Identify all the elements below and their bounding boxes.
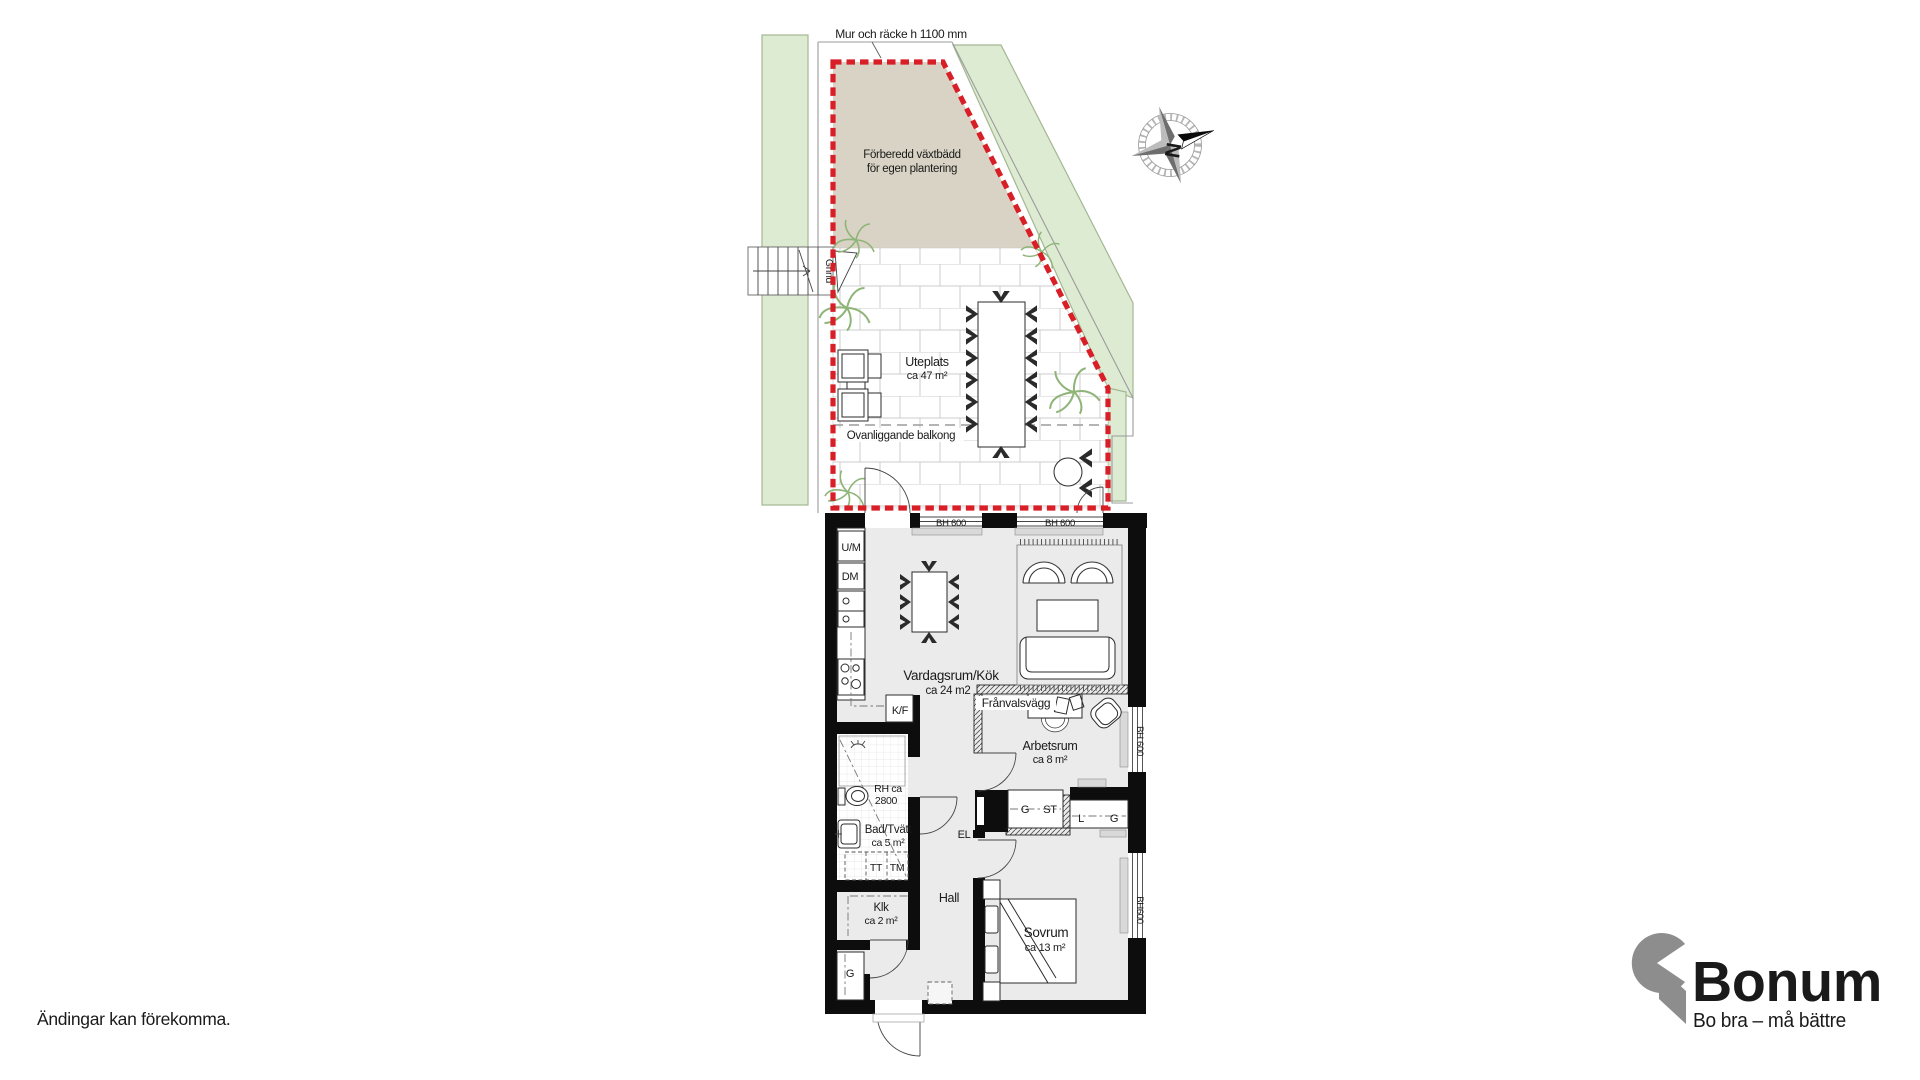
label-um: U/M [841, 542, 860, 554]
label-rh-1: RH ca [874, 783, 902, 795]
sofa [1020, 637, 1115, 679]
label-kf: K/F [892, 705, 909, 717]
dining-table [912, 572, 947, 632]
hedge-right-strip [1108, 388, 1126, 501]
living-room-area: ca 24 m2 [926, 685, 971, 697]
balcony-note: Ovanliggande balkong [847, 430, 955, 442]
label-bh600-right-bedroom: BH600 [1134, 896, 1145, 924]
apartment-plan: U/M DM K/F BH 600 BH 600 Vardagsrum/Kök … [825, 513, 1147, 1056]
terrace-name: Uteplats [905, 355, 949, 369]
label-bh600-top-left: BH 600 [936, 518, 966, 529]
floorplan-page: Grind [0, 0, 1920, 1080]
wall-note-leader [872, 42, 881, 58]
bonum-tagline: Bo bra – må bättre [1693, 1010, 1846, 1032]
label-g1: G [1021, 804, 1029, 816]
hall-mat-dashed [928, 982, 952, 1004]
office-name: Arbetsrum [1023, 739, 1078, 753]
franvalsvagg-label: Frånvalsvägg [982, 696, 1050, 710]
label-g2: G [1110, 813, 1118, 825]
pillow [985, 906, 998, 933]
coffee-table [1037, 600, 1098, 631]
bath-area: ca 5 m² [872, 837, 906, 849]
label-bh600-top-right: BH 600 [1045, 518, 1075, 529]
garden-section: Grind [748, 27, 1133, 513]
disclaimer-text: Ändingar kan förekomma. [37, 1009, 230, 1029]
label-tm: TM [890, 862, 905, 874]
wall-note: Mur och räcke h 1100 mm [835, 27, 967, 41]
pillow [985, 946, 998, 973]
hall-name: Hall [939, 891, 959, 905]
klk-name: Klk [873, 902, 889, 914]
label-l: L [1078, 813, 1084, 825]
terrace-area: ca 47 m² [907, 370, 948, 382]
label-st: ST [1043, 804, 1057, 816]
bed [1000, 899, 1076, 983]
plantbed-label-1: Förberedd växtbädd [863, 149, 961, 161]
bedroom-name: Sovrum [1024, 925, 1069, 940]
bonum-logo-mark-icon [1632, 933, 1686, 1024]
nightstand [983, 880, 1000, 899]
el-shaft-slot [977, 797, 984, 825]
label-g-entry: G [846, 968, 854, 980]
klk-area: ca 2 m² [865, 915, 899, 927]
living-room-name: Vardagsrum/Kök [903, 668, 999, 683]
label-dm: DM [842, 571, 859, 583]
bath-name: Bad/Tvätt [865, 824, 913, 836]
nightstand [983, 982, 1000, 1001]
bedroom-area: ca 13 m² [1025, 942, 1066, 954]
office-area: ca 8 m² [1033, 754, 1068, 766]
bonum-wordmark: Bonum [1692, 950, 1882, 1014]
plantbed-label-2: för egen plantering [867, 163, 957, 175]
sink-icon [835, 820, 860, 848]
floorplan-drawing: Grind [0, 0, 1920, 1080]
label-rh-2: 2800 [875, 795, 898, 807]
compass-north-icon: N [1121, 94, 1226, 195]
label-tt: TT [870, 862, 883, 874]
label-el: EL [958, 829, 971, 841]
bonum-logo: Bonum Bo bra – må bättre [1632, 933, 1882, 1032]
label-bh600-right-office: BH 600 [1134, 726, 1145, 756]
